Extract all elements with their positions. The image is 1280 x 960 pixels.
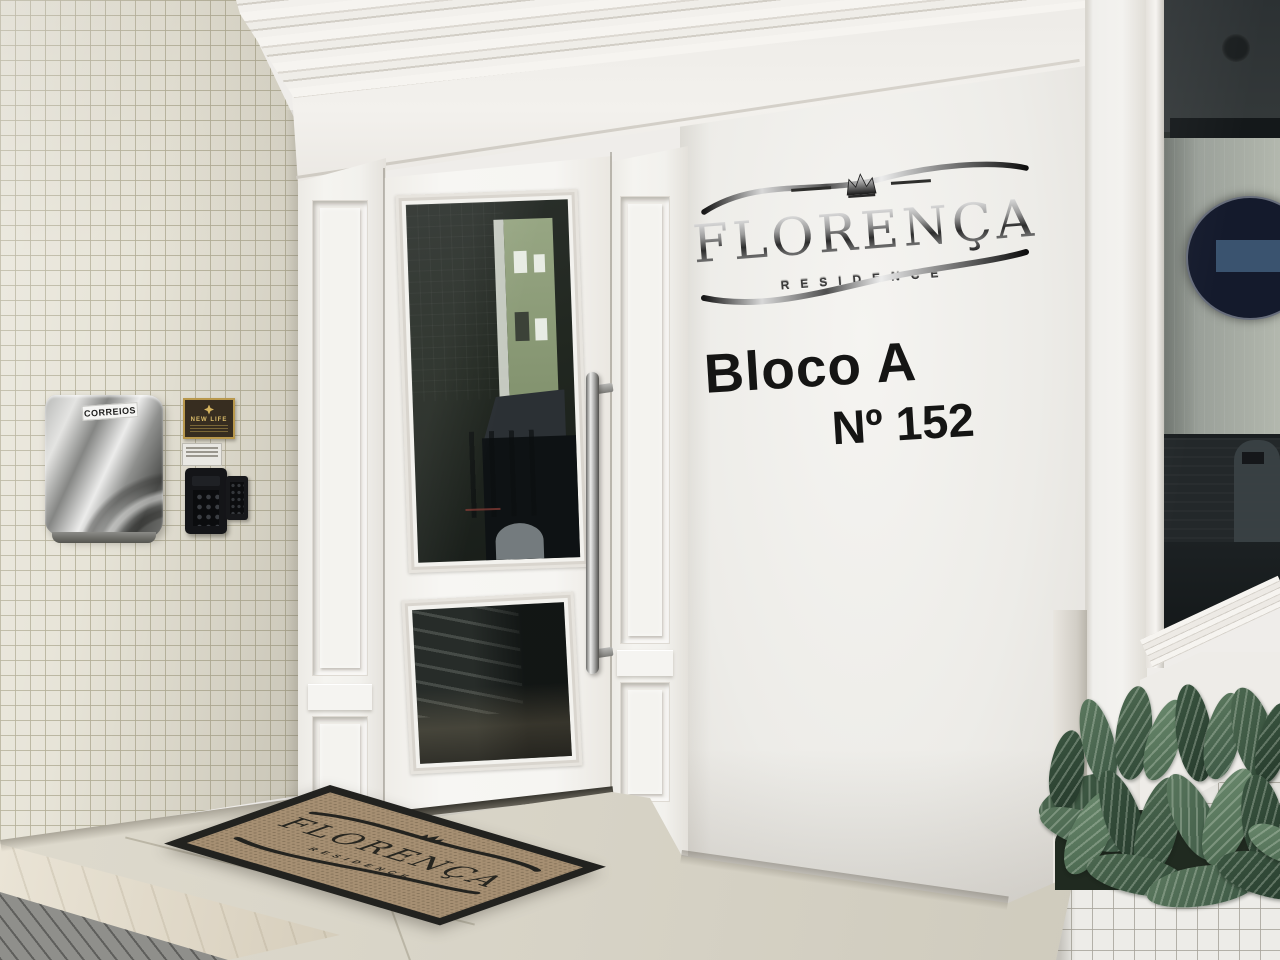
- intercom-keypad-small: [226, 476, 248, 520]
- label-text-line: [186, 447, 218, 449]
- window-frame: [1146, 0, 1164, 668]
- building-entrance-scene: FLORENÇA RESIDENCE Bloco A Nº 152: [0, 0, 1280, 960]
- label-text-line: [186, 455, 218, 457]
- lobby-window: [1164, 0, 1280, 660]
- door-upper-glass: [406, 199, 580, 562]
- door-lower-glass: [412, 602, 572, 764]
- mailbox-bottom-lip: [52, 532, 156, 543]
- pilaster-rail: [617, 650, 673, 676]
- pilaster-panel: [620, 196, 670, 644]
- info-label: [182, 443, 222, 466]
- door-handle: [586, 372, 599, 674]
- door-seam: [383, 168, 385, 830]
- door-lower-glass-frame: [402, 592, 583, 775]
- door-upper-glass-frame: [395, 189, 590, 573]
- door-seam: [610, 152, 612, 808]
- glass-sheen: [406, 199, 580, 562]
- right-dash: [891, 179, 931, 185]
- window-sheen: [1164, 0, 1280, 660]
- brass-plaque: NEW LIFE: [183, 398, 235, 439]
- glass-floor-reflection: [412, 602, 572, 764]
- intercom-keypad: [185, 468, 227, 534]
- pilaster-panel: [312, 200, 368, 676]
- sign-bottom-swoosh: [700, 242, 1030, 317]
- label-text-line: [186, 451, 218, 453]
- left-dash: [791, 186, 831, 192]
- plaque-fine-print: [190, 425, 228, 433]
- potted-plant: [1020, 670, 1280, 960]
- plaque-emblem-icon: [204, 405, 214, 415]
- crown-icon: [842, 170, 880, 200]
- pilaster-rail: [308, 684, 372, 710]
- pilaster-panel: [620, 682, 670, 802]
- plaque-title: NEW LIFE: [191, 417, 228, 423]
